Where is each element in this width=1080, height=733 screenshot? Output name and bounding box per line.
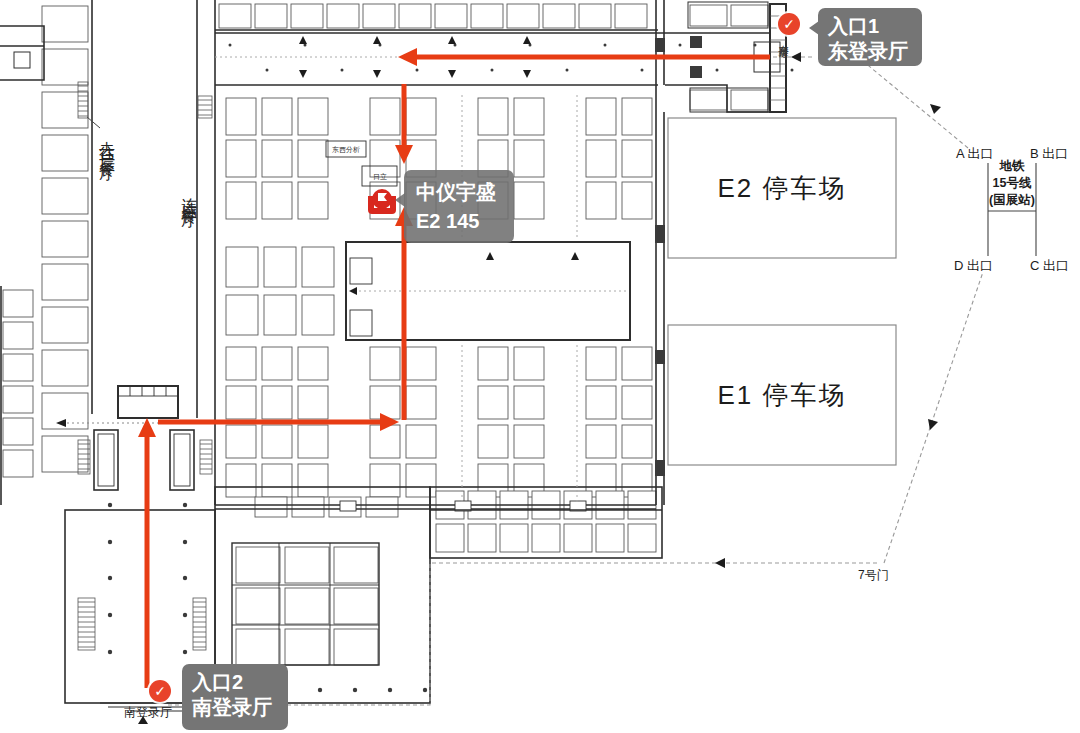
booth: [42, 307, 88, 343]
booth: [285, 547, 329, 583]
column-dot: [108, 540, 112, 544]
booth: [42, 264, 88, 300]
column-dot: [318, 688, 322, 692]
booth: [285, 629, 329, 665]
booth: [514, 347, 544, 380]
booth: [435, 4, 467, 28]
booth: [596, 524, 624, 552]
booth: [478, 386, 508, 419]
booth: [262, 425, 292, 458]
booth: [478, 140, 508, 177]
booth: [468, 524, 496, 552]
column-dot: [108, 613, 112, 617]
column-dot: [183, 650, 187, 654]
booth: [226, 295, 258, 335]
booth: [302, 295, 334, 335]
column-dot: [248, 688, 252, 692]
booth: [298, 464, 328, 497]
column-dot: [416, 69, 419, 72]
booth: [285, 588, 329, 624]
booth: [622, 425, 652, 458]
booth: [298, 98, 328, 135]
booth: [586, 347, 616, 380]
booth: [262, 347, 292, 380]
column-dot: [183, 576, 187, 580]
booth: [42, 221, 88, 257]
booth: [236, 588, 280, 624]
booth: [370, 386, 400, 419]
booth: [298, 182, 328, 219]
booth: [406, 98, 436, 135]
booth: [42, 49, 88, 85]
column-dot: [183, 540, 187, 544]
booth: [264, 247, 296, 287]
booth: [586, 98, 616, 135]
booth-grid: [3, 4, 768, 665]
booth: [514, 140, 544, 177]
column-dot: [491, 69, 494, 72]
booth: [478, 98, 508, 135]
booth: [399, 4, 431, 28]
booth: [436, 524, 464, 552]
column-dot: [108, 503, 112, 507]
route-arrow-up: [402, 226, 407, 420]
column-dot: [641, 69, 644, 72]
booth: [264, 295, 296, 335]
booth: [370, 425, 400, 458]
booth: [406, 464, 436, 497]
column-dot: [183, 503, 187, 507]
booth: [532, 524, 560, 552]
booth: [262, 182, 292, 219]
column-dot: [423, 688, 427, 692]
booth: [3, 354, 33, 381]
booth: [255, 497, 287, 517]
booth: [500, 524, 528, 552]
booth: [3, 322, 33, 349]
booth: [622, 98, 652, 135]
booth: [406, 182, 436, 219]
booth: [514, 425, 544, 458]
booth: [298, 347, 328, 380]
booth: [291, 4, 323, 28]
column-dot: [566, 69, 569, 72]
booth: [298, 140, 328, 177]
column-dot: [388, 688, 392, 692]
booth: [406, 425, 436, 458]
floor-plan-svg: [0, 0, 1080, 733]
column-dot: [716, 69, 719, 72]
floor-plan-image: 入口1 东登录厅 ✓ 东登录厅 中仪宇盛 E2 145 E2 停车场 E1 停车…: [0, 0, 1080, 733]
column-dot: [183, 613, 187, 617]
route-arrow-down: [402, 84, 407, 145]
booth: [370, 98, 400, 135]
booth: [262, 140, 292, 177]
column-dot: [353, 688, 357, 692]
booth: [622, 140, 652, 177]
booth: [226, 182, 256, 219]
column-dot: [679, 44, 682, 47]
booth: [370, 347, 400, 380]
booth: [292, 497, 324, 517]
column-dot: [266, 69, 269, 72]
column-dot: [108, 650, 112, 654]
booth: [514, 98, 544, 135]
booth: [334, 588, 378, 624]
booth: [334, 629, 378, 665]
booth: [236, 547, 280, 583]
booth: [731, 90, 768, 110]
route-arrow-east: [158, 420, 380, 425]
booth: [471, 4, 503, 28]
column-dot: [283, 688, 287, 692]
booth: [579, 4, 611, 28]
booth: [262, 464, 292, 497]
booth: [586, 425, 616, 458]
booth: [507, 4, 539, 28]
booth: [298, 386, 328, 419]
column-dot: [791, 69, 794, 72]
booth: [406, 347, 436, 380]
booth: [406, 386, 436, 419]
column-dot: [108, 576, 112, 580]
booth: [478, 347, 508, 380]
booth: [3, 290, 33, 317]
booth: [564, 524, 592, 552]
booth: [302, 247, 334, 287]
booth: [514, 182, 544, 219]
booth: [298, 425, 328, 458]
booth: [731, 5, 768, 26]
booth: [478, 182, 508, 219]
route-arrow-top: [416, 55, 770, 60]
column-dot: [229, 44, 232, 47]
column-dot: [754, 44, 757, 47]
booth: [586, 140, 616, 177]
booth: [226, 347, 256, 380]
booth: [478, 425, 508, 458]
booth: [219, 4, 251, 28]
booth: [586, 386, 616, 419]
booth: [236, 629, 280, 665]
booth: [42, 92, 88, 128]
booth: [628, 524, 656, 552]
booth: [226, 247, 258, 287]
column-dot: [341, 69, 344, 72]
booth: [226, 98, 256, 135]
booth: [690, 5, 727, 26]
route-arrow-south: [145, 437, 150, 688]
booth: [622, 386, 652, 419]
booth: [255, 4, 287, 28]
booth: [3, 450, 33, 477]
booth: [370, 464, 400, 497]
booth: [42, 135, 88, 171]
booth: [226, 386, 256, 419]
booth: [690, 90, 727, 110]
booth: [262, 386, 292, 419]
booth: [262, 98, 292, 135]
booth: [226, 425, 256, 458]
booth: [42, 6, 88, 42]
booth: [514, 386, 544, 419]
booth: [334, 547, 378, 583]
booth: [363, 4, 395, 28]
booth: [327, 4, 359, 28]
booth: [3, 418, 33, 445]
column-dot: [604, 44, 607, 47]
booth: [543, 4, 575, 28]
booth: [42, 350, 88, 386]
booth: [226, 140, 256, 177]
booth: [42, 178, 88, 214]
booth: [615, 4, 647, 28]
booth: [622, 347, 652, 380]
booth: [3, 386, 33, 413]
booth: [586, 182, 616, 219]
booth: [622, 182, 652, 219]
booth: [366, 497, 398, 517]
booth: [226, 464, 256, 497]
